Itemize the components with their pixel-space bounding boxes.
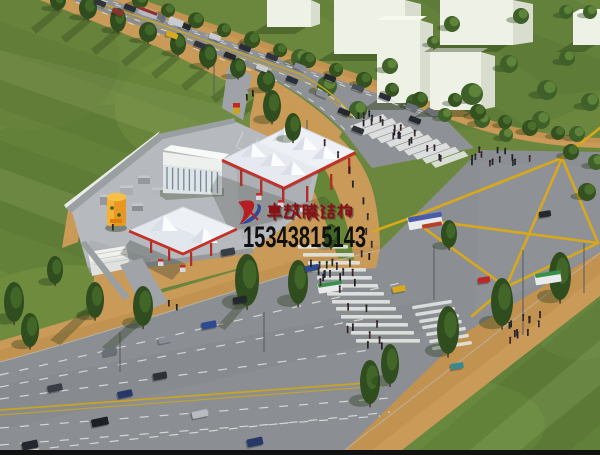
svg-text:15343815143: 15343815143 xyxy=(243,221,366,254)
